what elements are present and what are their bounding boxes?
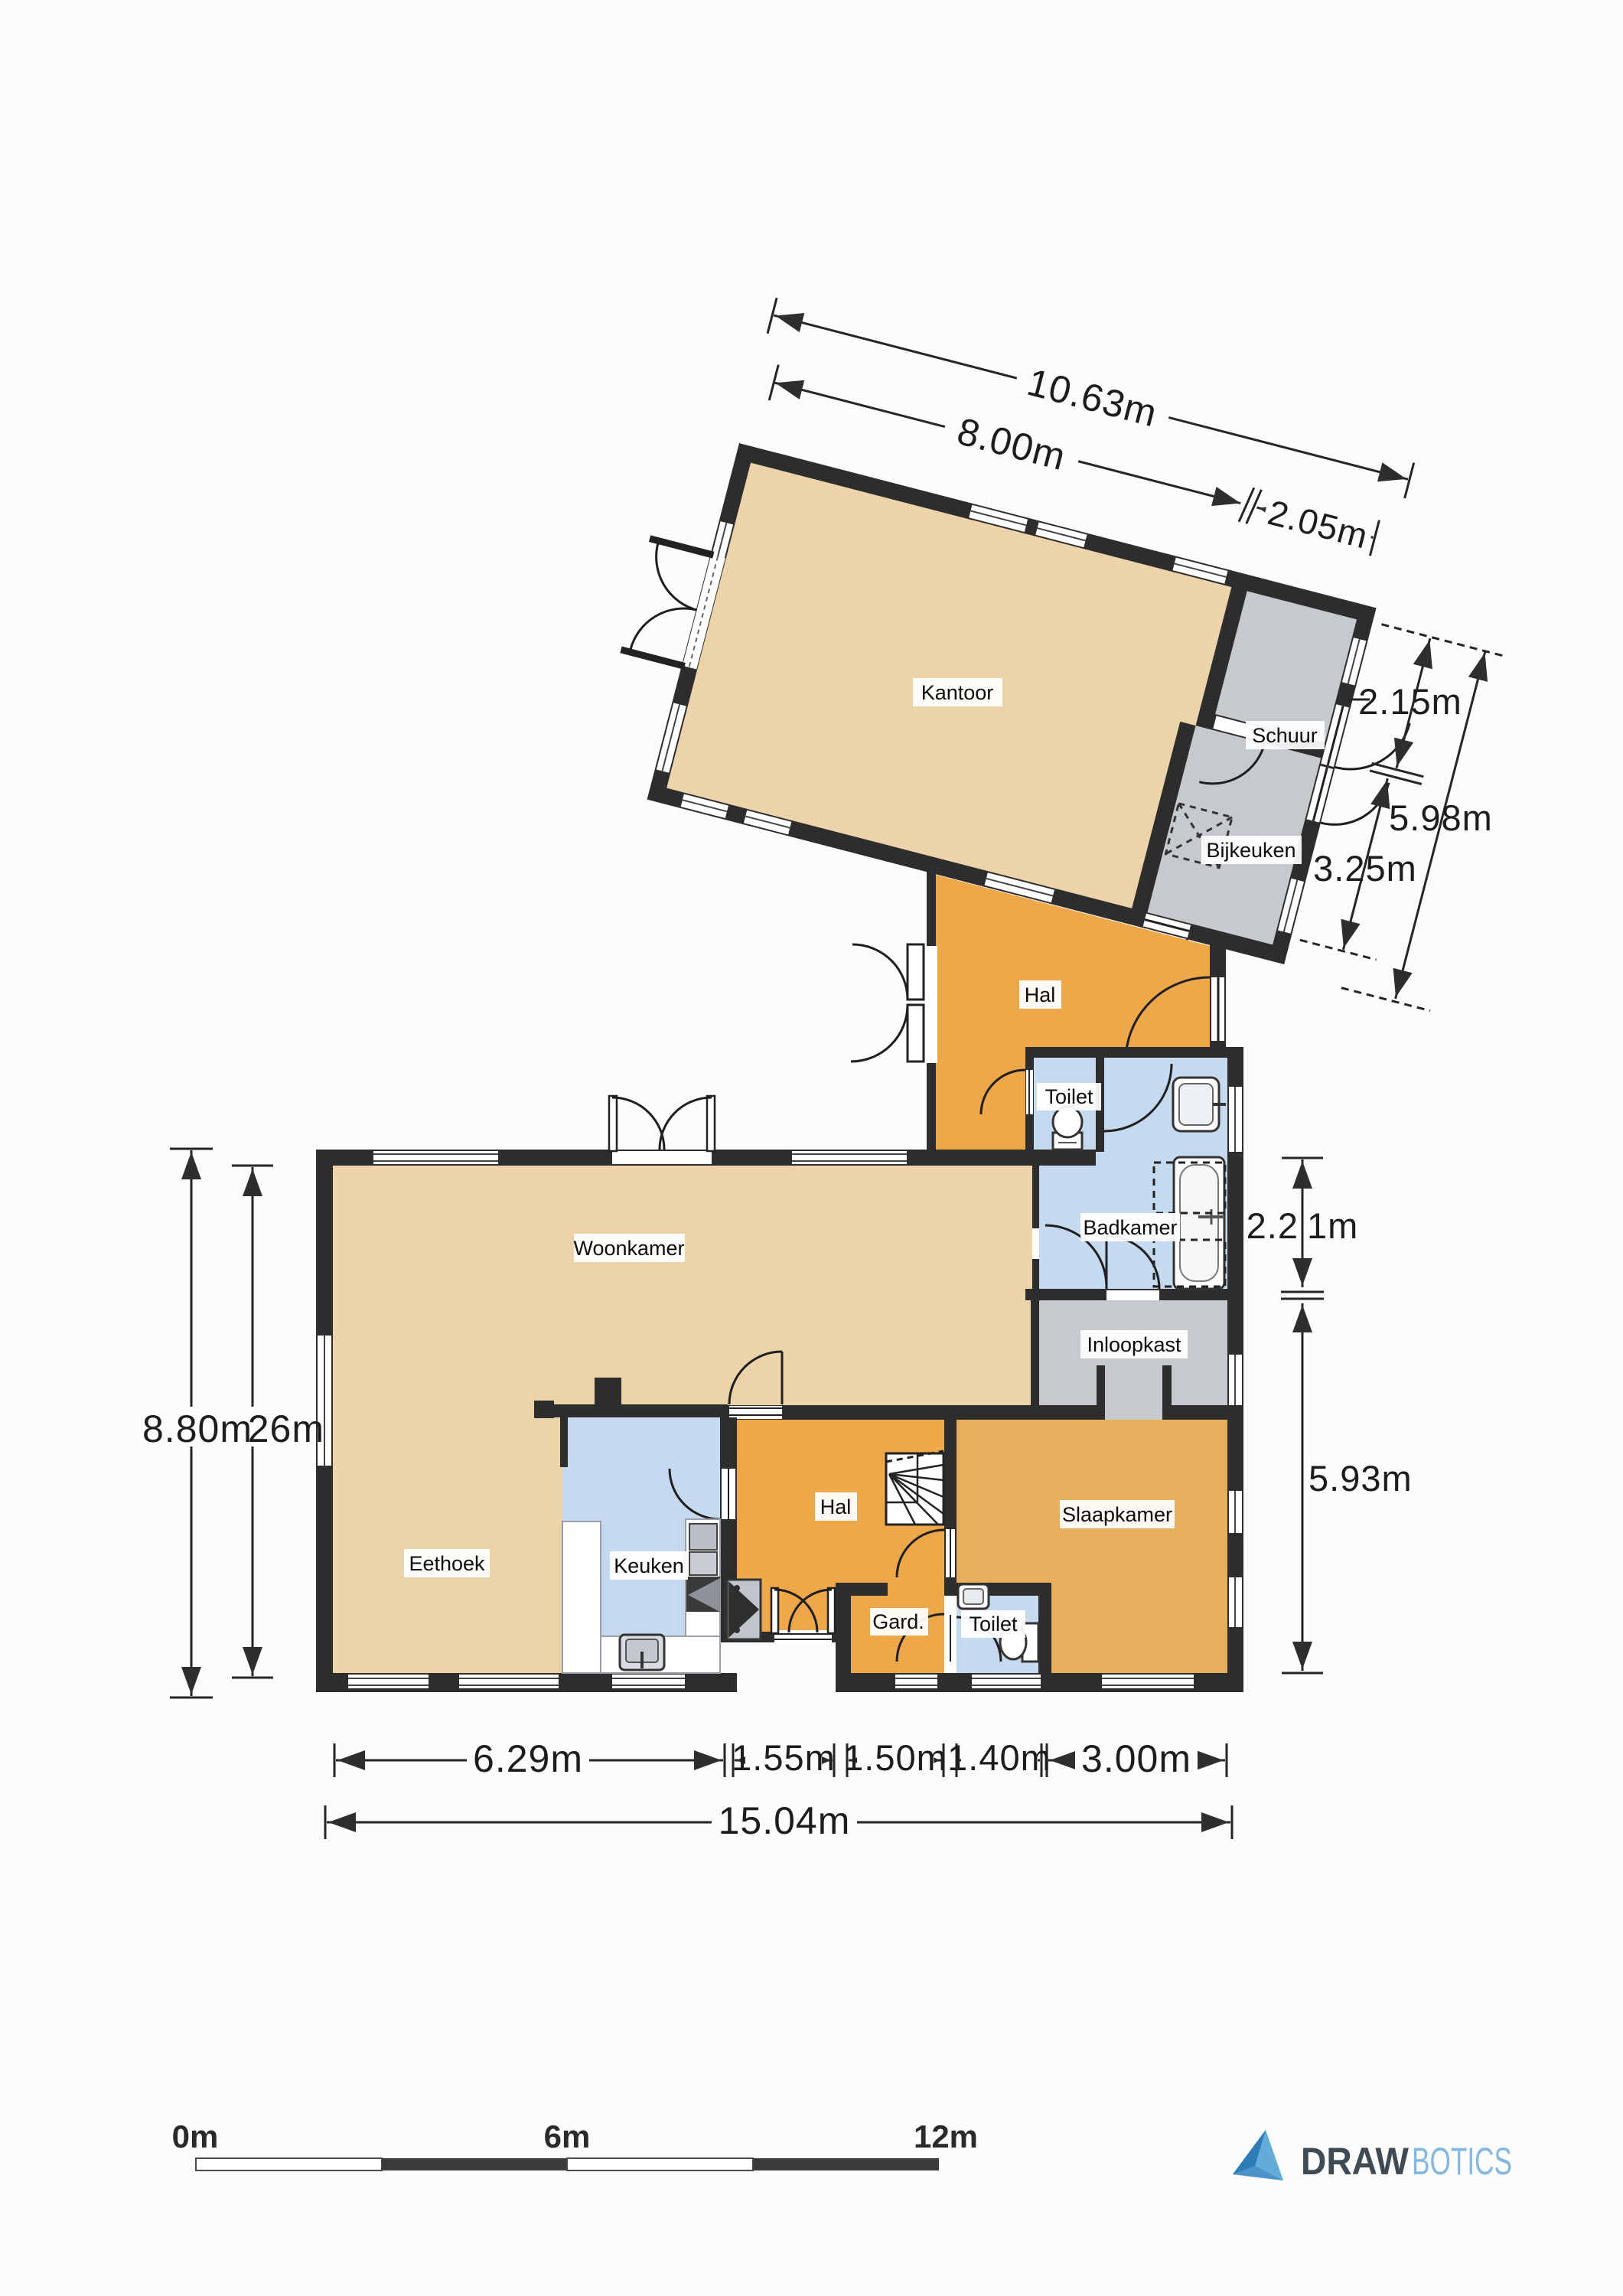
svg-text:2.2: 2.2 — [1247, 1205, 1299, 1246]
svg-text:5.93m: 5.93m — [1309, 1458, 1413, 1499]
svg-text:8.80m: 8.80m — [142, 1407, 253, 1450]
svg-text:1.55m: 1.55m — [732, 1737, 836, 1778]
svg-text:5.98m: 5.98m — [1389, 797, 1493, 838]
svg-text:6.29m: 6.29m — [473, 1737, 583, 1780]
svg-text:15.04m: 15.04m — [719, 1799, 851, 1842]
svg-text:Hal: Hal — [820, 1495, 852, 1518]
svg-text:2.15m: 2.15m — [1358, 681, 1462, 722]
svg-text:Keuken: Keuken — [614, 1554, 684, 1577]
svg-text:Eethoek: Eethoek — [409, 1552, 485, 1575]
svg-text:1m: 1m — [1307, 1205, 1358, 1246]
svg-text:DRAW: DRAW — [1301, 2140, 1410, 2183]
svg-text:Hal: Hal — [1025, 983, 1056, 1006]
svg-text:1.50m: 1.50m — [843, 1737, 947, 1778]
svg-text:Gard.: Gard. — [872, 1610, 924, 1633]
svg-text:Bijkeuken: Bijkeuken — [1206, 839, 1295, 862]
svg-text:Schuur: Schuur — [1252, 724, 1318, 747]
svg-text:0m: 0m — [172, 2118, 219, 2154]
svg-text:3.25m: 3.25m — [1313, 848, 1417, 889]
svg-text:BOTICS: BOTICS — [1412, 2140, 1512, 2183]
svg-text:Inloopkast: Inloopkast — [1087, 1333, 1181, 1356]
svg-text:Toilet: Toilet — [1045, 1085, 1093, 1108]
svg-text:Slaapkamer: Slaapkamer — [1062, 1503, 1172, 1526]
svg-text:Badkamer: Badkamer — [1083, 1216, 1177, 1239]
svg-text:6m: 6m — [544, 2118, 591, 2154]
svg-text:3.00m: 3.00m — [1081, 1737, 1191, 1780]
svg-text:Woonkamer: Woonkamer — [573, 1237, 684, 1260]
svg-text:1.40m: 1.40m — [947, 1737, 1051, 1778]
svg-text:Toilet: Toilet — [969, 1613, 1018, 1636]
svg-text:Kantoor: Kantoor — [921, 681, 994, 704]
svg-text:12m: 12m — [914, 2118, 978, 2154]
